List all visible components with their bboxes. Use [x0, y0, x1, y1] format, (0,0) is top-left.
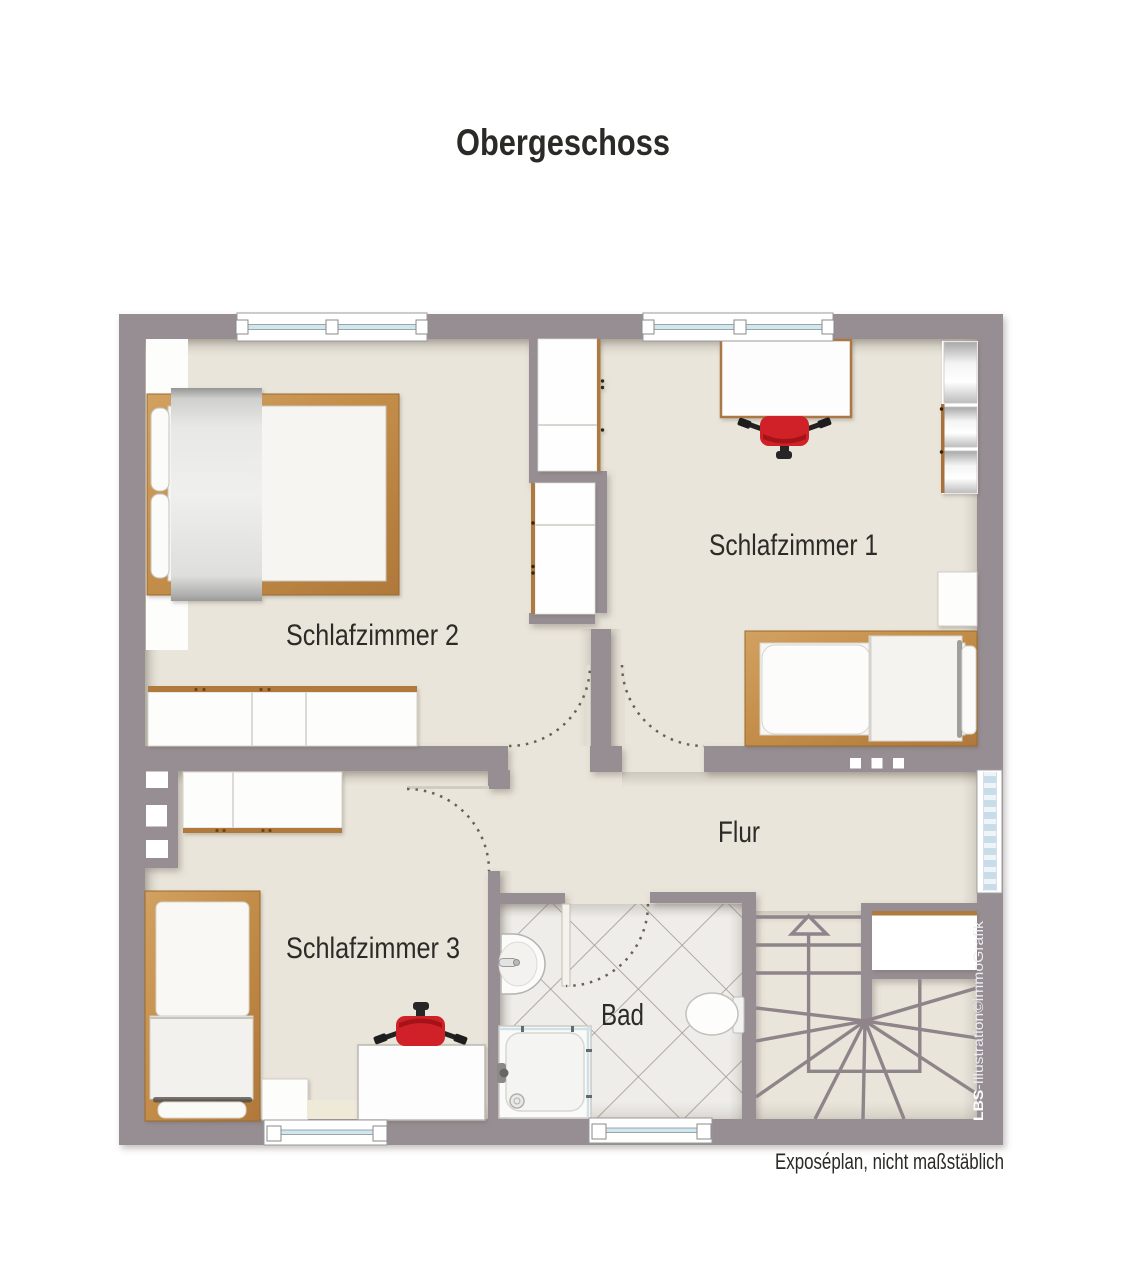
svg-text:Schlafzimmer 1: Schlafzimmer 1	[709, 529, 878, 562]
svg-text:Flur: Flur	[718, 816, 760, 849]
svg-text:Schlafzimmer 2: Schlafzimmer 2	[286, 619, 459, 652]
svg-text:Bad: Bad	[601, 997, 644, 1032]
svg-text:LBS-Illustration©immoGrafik: LBS-Illustration©immoGrafik	[971, 921, 986, 1121]
svg-text:Exposéplan, nicht maßstäblich: Exposéplan, nicht maßstäblich	[775, 1149, 1004, 1174]
svg-text:Obergeschoss: Obergeschoss	[456, 122, 670, 163]
svg-text:Schlafzimmer 3: Schlafzimmer 3	[286, 932, 460, 965]
